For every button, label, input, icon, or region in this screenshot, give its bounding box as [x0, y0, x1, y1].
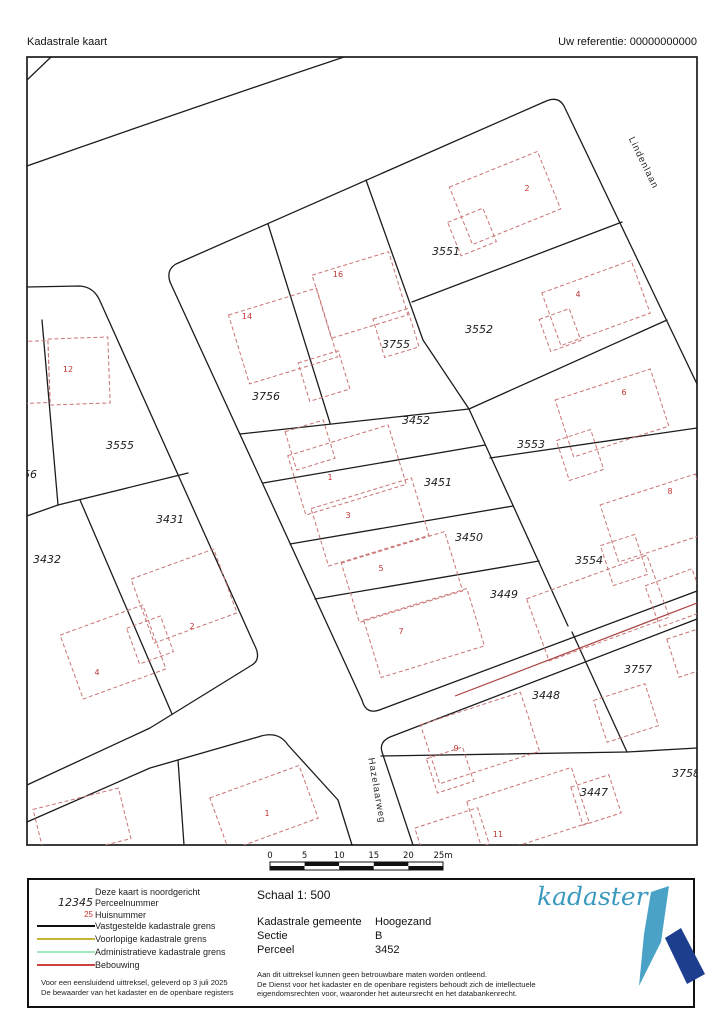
- disclaimer-line: eigendomsrechten voor, waaronder het aut…: [257, 989, 517, 998]
- parcel-number: 3452: [402, 414, 430, 427]
- house-number: 2: [524, 184, 529, 193]
- parcel-number: 3755: [382, 338, 410, 351]
- disclaimer-line: De Dienst voor het kadaster en de openba…: [257, 980, 536, 989]
- legend-footer-line: De bewaarder van het kadaster en de open…: [41, 988, 234, 997]
- legend-line-swatch: [37, 964, 95, 966]
- building-outline: [449, 151, 560, 244]
- building-outline: [667, 627, 717, 677]
- building-outline: [542, 260, 650, 345]
- parcel-number: 3553: [517, 438, 545, 451]
- house-number: 1: [327, 473, 332, 482]
- scale-segment: [270, 866, 305, 870]
- building-outline: [364, 589, 485, 678]
- building-outline: [60, 605, 166, 699]
- parcel-number: 3552: [465, 323, 493, 336]
- legend-item: Administratieve kadastrale grens: [29, 947, 359, 959]
- parcel-labels: 3555563431343237563755355135523452345134…: [23, 245, 700, 799]
- parcel-number: 3555: [106, 439, 134, 452]
- scale-segment: [339, 866, 374, 870]
- parcel-number: 3432: [33, 553, 61, 566]
- scale-segment: [305, 866, 340, 870]
- detail-value: B: [375, 930, 382, 942]
- house-number: 3: [345, 511, 350, 520]
- scale-tick: 25m: [433, 851, 452, 861]
- building-outline: [420, 692, 539, 783]
- house-number: 4: [575, 290, 580, 299]
- parcel-number: 3448: [532, 689, 560, 702]
- scale-bar: 0510152025m: [267, 851, 452, 870]
- legend-item-label: Huisnummer: [95, 910, 146, 920]
- disclaimer-line: Aan dit uittreksel kunnen geen betrouwba…: [257, 970, 487, 979]
- legend-item-label: Vastgestelde kadastrale grens: [95, 921, 215, 931]
- parcel-number: 3449: [490, 588, 518, 601]
- detail-value: 3452: [375, 944, 399, 956]
- kadaster-logo-icon: [629, 886, 709, 1004]
- page: Kadastrale kaart Uw referentie: 00000000…: [0, 0, 724, 1024]
- building-outline: [571, 775, 621, 825]
- scale-tick: 20: [403, 851, 414, 861]
- legend-line-swatch: [37, 951, 95, 953]
- building-outline: [556, 429, 603, 480]
- building-outline: [288, 425, 407, 515]
- legend-line-swatch: [37, 925, 95, 927]
- building-outline: [527, 555, 670, 661]
- building-outline: [48, 337, 110, 405]
- building-outline: [555, 369, 669, 457]
- street-labels: LindenlaanHazelaarweg: [365, 135, 660, 824]
- legend-item-label: Bebouwing: [95, 960, 140, 970]
- scale-segment: [339, 862, 374, 866]
- scale-segment: [408, 862, 443, 866]
- building-outline: [312, 252, 408, 339]
- logo-bar-shape: [665, 928, 705, 984]
- scale-tick: 10: [334, 851, 345, 861]
- house-number: 11: [493, 830, 503, 839]
- parcel-number: 3758: [672, 767, 700, 780]
- bebouwing-line: [455, 603, 697, 696]
- north-note: Deze kaart is noordgericht: [95, 887, 200, 897]
- scale-segment: [305, 862, 340, 866]
- parcel-number: 3431: [156, 513, 184, 526]
- scale-segment: [408, 866, 443, 870]
- parcel-number: 3551: [432, 245, 460, 258]
- legend-item: Voorlopige kadastrale grens: [29, 934, 359, 946]
- scale-tick: 15: [368, 851, 379, 861]
- legend-line-swatch: [37, 938, 95, 940]
- building-outline: [131, 549, 237, 643]
- detail-value: Hoogezand: [375, 916, 431, 928]
- detail-key: Kadastrale gemeente: [257, 916, 362, 928]
- legend-symbol: 25: [43, 910, 93, 919]
- house-numbers: 1012141624681357911241: [16, 184, 673, 839]
- house-number: 5: [378, 564, 383, 573]
- building-outline: [298, 351, 350, 402]
- street-name: Hazelaarweg: [365, 757, 387, 824]
- legend-item-label: Voorlopige kadastrale grens: [95, 934, 207, 944]
- legend-box: Deze kaart is noordgericht 12345Perceeln…: [27, 878, 695, 1008]
- building-outline: [285, 420, 335, 470]
- house-number: 9: [453, 744, 458, 753]
- house-number: 12: [63, 365, 73, 374]
- house-number: 2: [189, 622, 194, 631]
- parcel-number: 3756: [252, 390, 280, 403]
- legend-footer-line: Voor een eensluidend uittreksel, gelever…: [41, 978, 228, 987]
- building-outline: [210, 765, 318, 850]
- scale-tick: 5: [302, 851, 307, 861]
- building-outline: [33, 788, 131, 860]
- house-number: 8: [667, 487, 672, 496]
- scale-tick: 0: [267, 851, 272, 861]
- cadastral-map: 3555563431343237563755355135523452345134…: [0, 0, 724, 1024]
- building-outline: [228, 288, 337, 384]
- building-outline: [426, 747, 473, 793]
- parcel-number: 3757: [624, 663, 652, 676]
- building-outline: [311, 478, 429, 566]
- scale-label: Schaal 1: 500: [257, 888, 330, 902]
- house-number: 7: [398, 627, 403, 636]
- building-outline: [539, 309, 581, 352]
- building-outline: [467, 767, 590, 856]
- street-name: Lindenlaan: [626, 135, 661, 191]
- detail-key: Perceel: [257, 944, 294, 956]
- scale-segment: [374, 862, 409, 866]
- house-number: 6: [621, 388, 626, 397]
- house-number: 1: [264, 809, 269, 818]
- detail-key: Sectie: [257, 930, 288, 942]
- parcel-number: 56: [23, 468, 37, 481]
- house-number: 14: [242, 312, 252, 321]
- house-number: 16: [333, 270, 343, 279]
- legend-item-label: Administratieve kadastrale grens: [95, 947, 226, 957]
- building-outline: [594, 684, 659, 743]
- legend-item-label: Perceelnummer: [95, 898, 159, 908]
- scale-segment: [374, 866, 409, 870]
- parcel-number: 3447: [580, 786, 608, 799]
- house-number: 10: [16, 369, 26, 378]
- parcel-number: 3451: [424, 476, 452, 489]
- house-number: 4: [94, 668, 99, 677]
- parcel-number: 3450: [455, 531, 483, 544]
- scale-segment: [270, 862, 305, 866]
- logo-nib-shape: [639, 886, 669, 986]
- legend-symbol: 12345: [43, 896, 93, 909]
- parcel-number: 3554: [575, 554, 603, 567]
